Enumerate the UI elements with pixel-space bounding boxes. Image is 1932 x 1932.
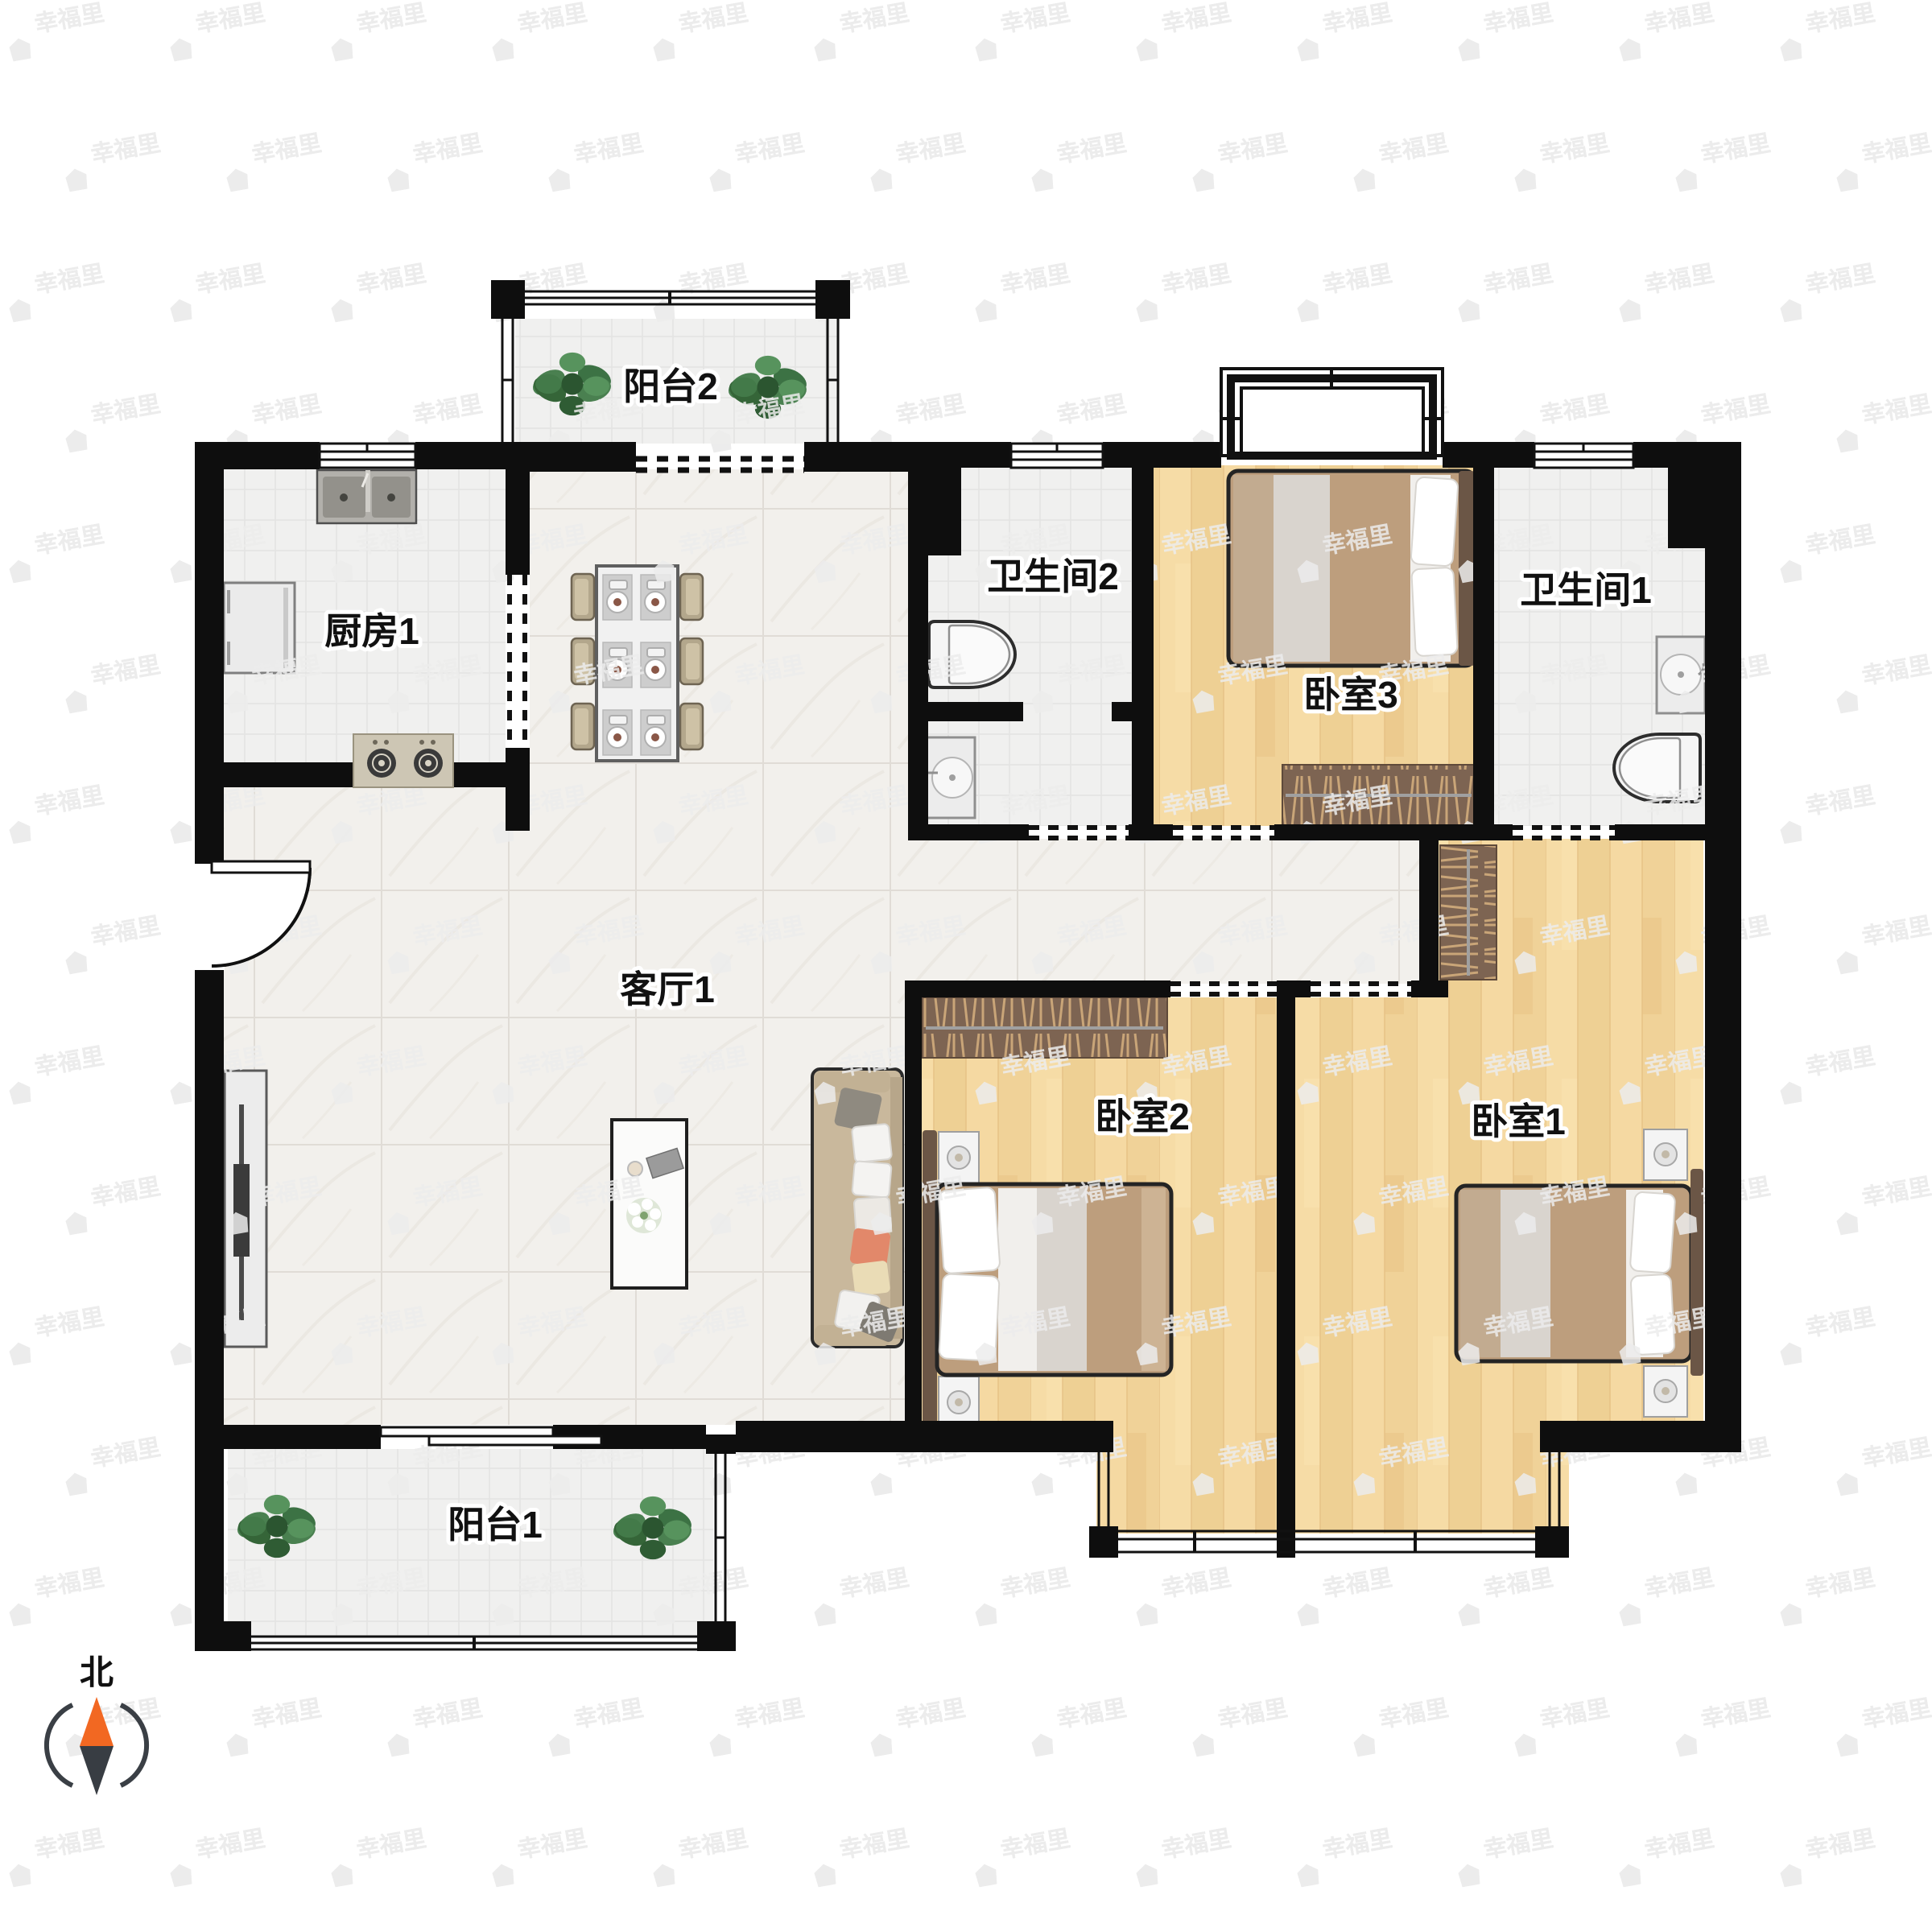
svg-text:阳台1: 阳台1 (448, 1504, 543, 1546)
svg-text:阳台2: 阳台2 (623, 365, 718, 407)
svg-text:卧室3: 卧室3 (1303, 674, 1398, 716)
svg-text:卫生间1: 卫生间1 (1520, 569, 1652, 611)
svg-text:卧室2: 卧室2 (1095, 1096, 1190, 1137)
svg-text:北: 北 (80, 1653, 114, 1691)
svg-text:卫生间2: 卫生间2 (987, 555, 1119, 597)
svg-text:客厅1: 客厅1 (620, 968, 715, 1010)
svg-text:卧室1: 卧室1 (1471, 1100, 1566, 1142)
svg-text:厨房1: 厨房1 (324, 610, 419, 652)
